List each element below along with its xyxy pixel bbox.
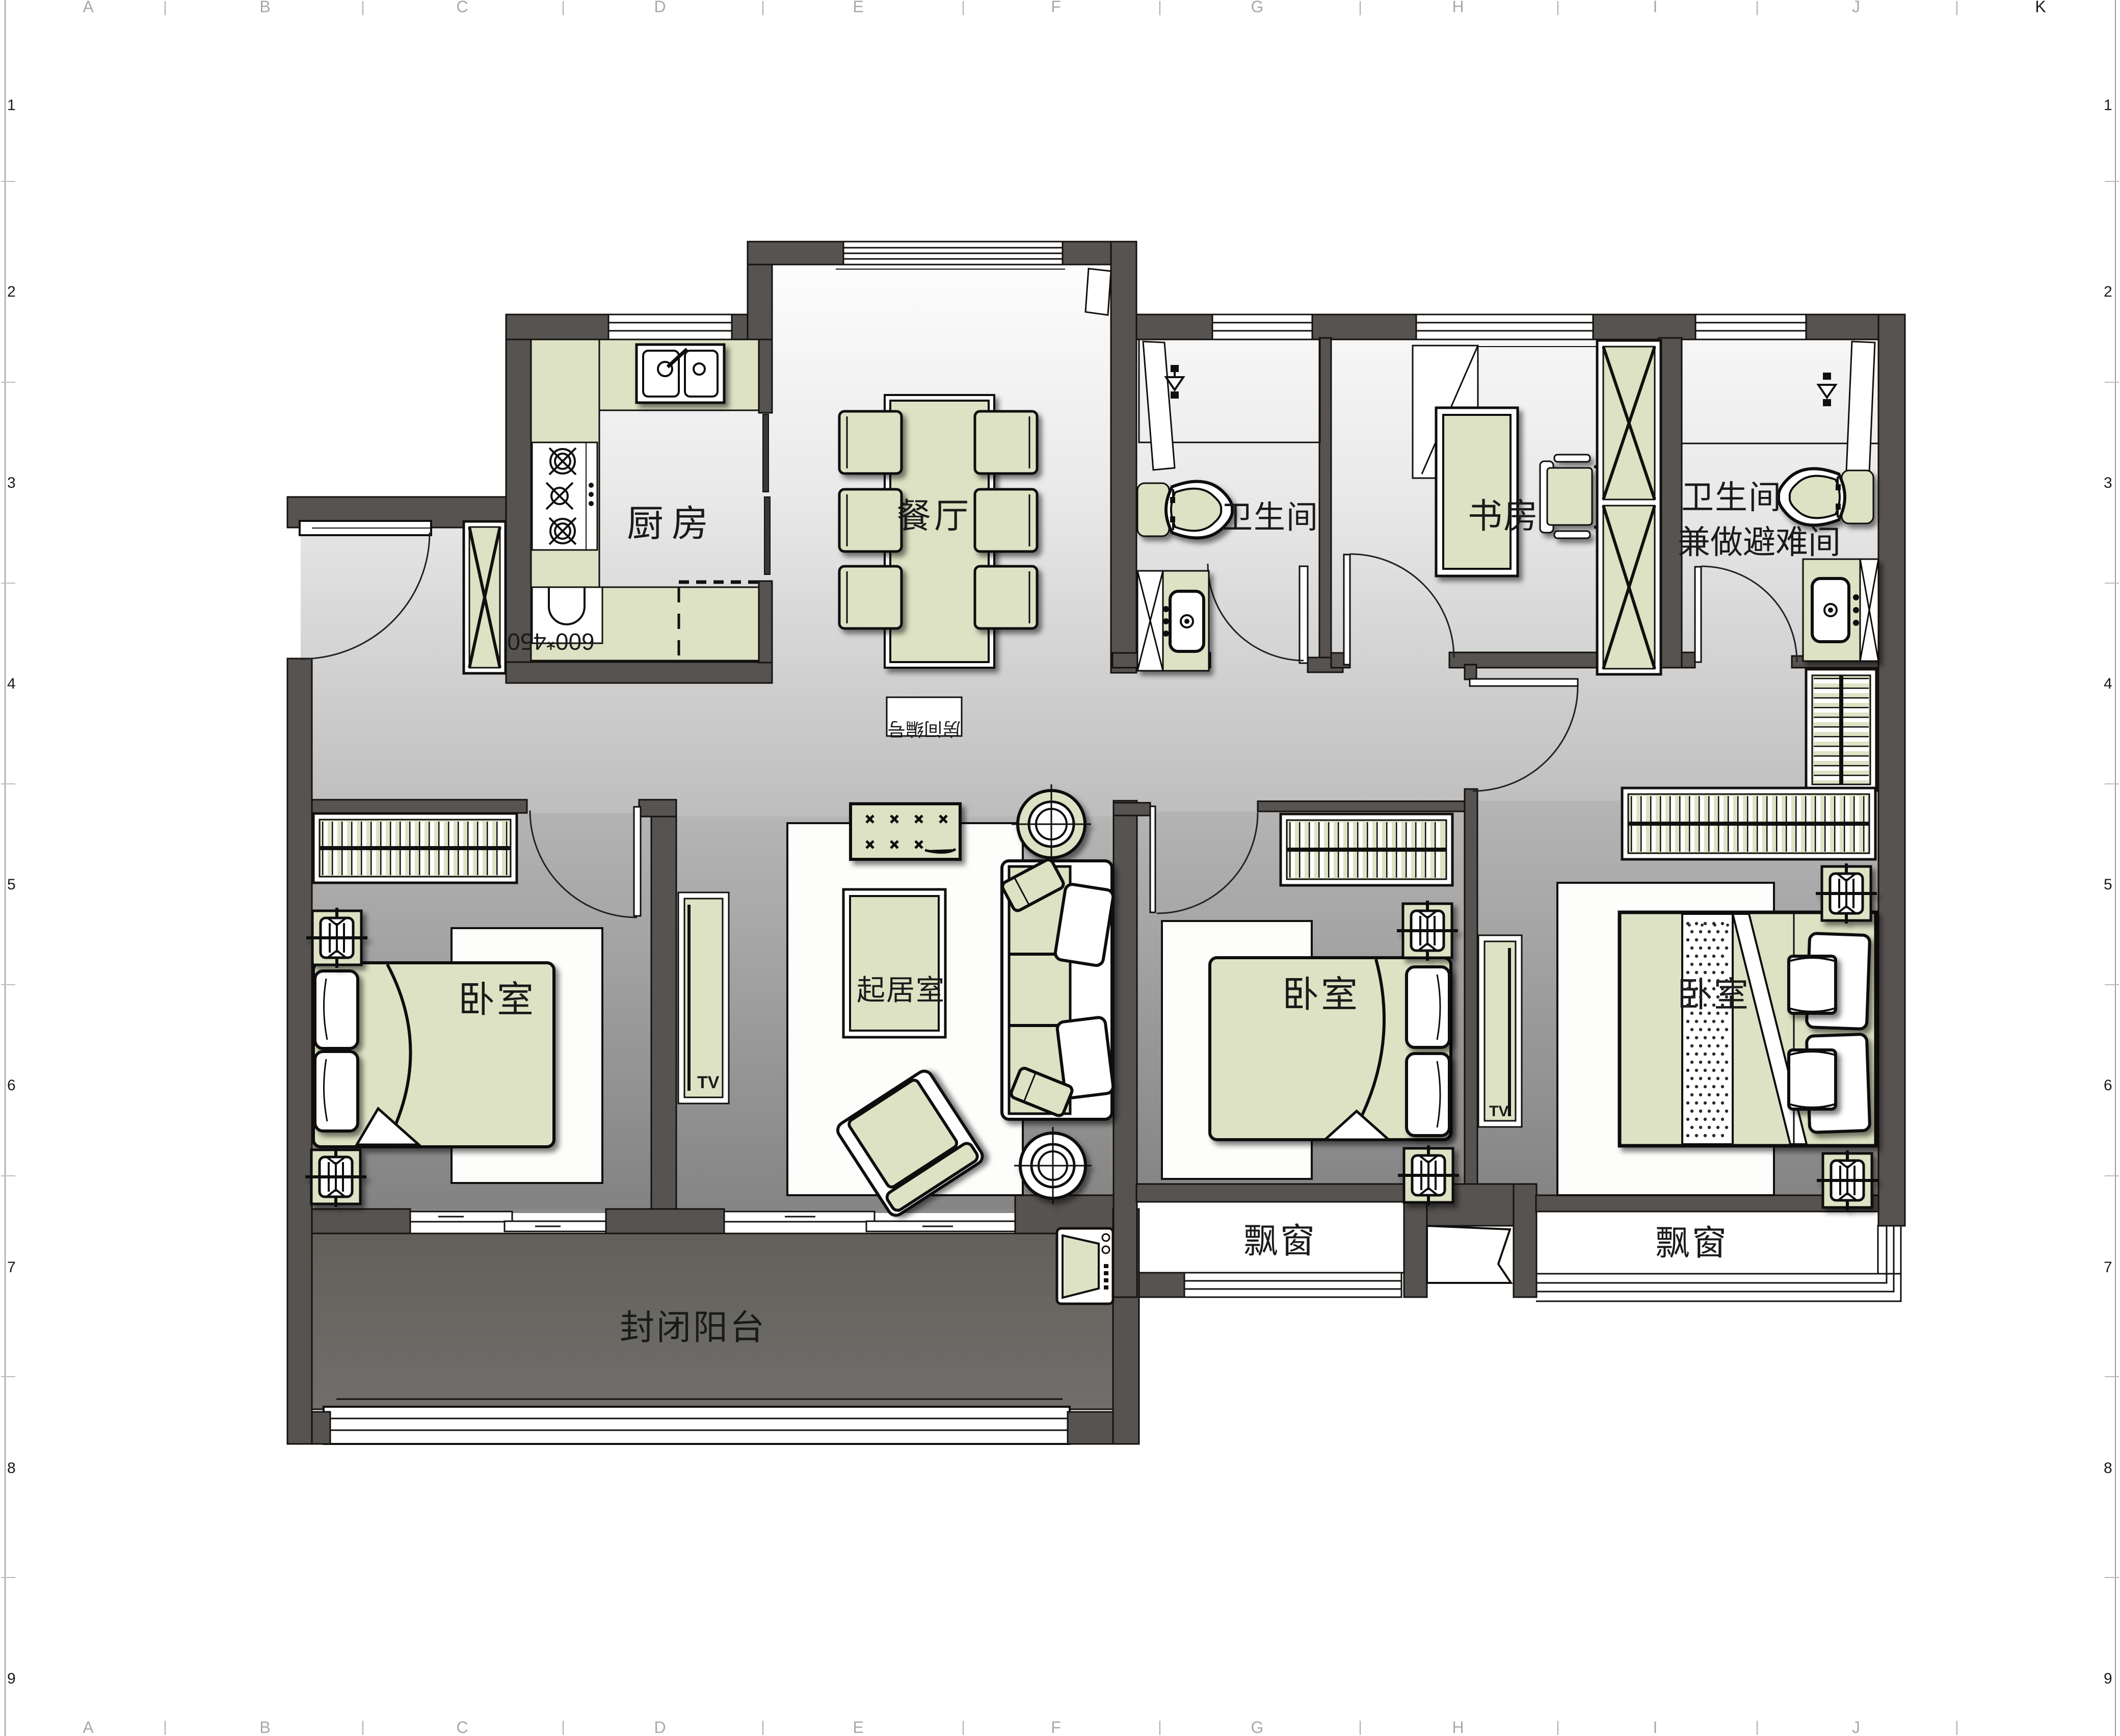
svg-text:4: 4 [2104, 675, 2112, 692]
svg-text:J: J [1852, 0, 1860, 16]
svg-text:F: F [1051, 0, 1061, 16]
svg-text:J: J [1852, 1718, 1860, 1736]
svg-text:2: 2 [2104, 283, 2112, 300]
svg-text:B: B [259, 1718, 270, 1736]
svg-text:A: A [83, 1718, 94, 1736]
svg-text:卧室: 卧室 [1677, 976, 1751, 1014]
svg-text:6: 6 [2104, 1077, 2112, 1094]
svg-text:TV: TV [697, 1073, 720, 1092]
svg-text:封闭阳台: 封闭阳台 [620, 1308, 766, 1347]
svg-text:E: E [853, 0, 863, 16]
svg-text:7: 7 [2104, 1259, 2112, 1276]
svg-text:I: I [1653, 0, 1658, 16]
svg-text:7: 7 [7, 1259, 16, 1276]
svg-text:5: 5 [2104, 876, 2112, 893]
svg-text:厨房: 厨房 [627, 504, 717, 544]
svg-text:K: K [2035, 0, 2046, 16]
svg-text:2: 2 [7, 283, 16, 300]
svg-text:E: E [853, 1718, 863, 1736]
svg-text:卧室: 卧室 [458, 980, 536, 1020]
svg-text:飘窗: 飘窗 [1243, 1222, 1317, 1260]
svg-text:C: C [456, 0, 468, 16]
svg-text:3: 3 [7, 475, 16, 491]
svg-text:600*450: 600*450 [507, 628, 594, 655]
svg-text:3: 3 [2104, 475, 2112, 491]
svg-text:卧室: 卧室 [1282, 975, 1360, 1015]
svg-text:C: C [456, 1718, 468, 1736]
svg-text:D: D [654, 0, 666, 16]
svg-text:4: 4 [7, 675, 16, 692]
svg-text:1: 1 [7, 97, 16, 114]
svg-text:F: F [1051, 1718, 1061, 1736]
svg-text:9: 9 [2104, 1670, 2112, 1687]
svg-text:卫生间: 卫生间 [1221, 500, 1319, 535]
svg-text:1: 1 [2104, 97, 2112, 114]
svg-text:6: 6 [7, 1077, 16, 1094]
svg-text:B: B [259, 0, 270, 16]
svg-text:TV: TV [1489, 1103, 1508, 1120]
svg-text:卫生间: 卫生间 [1681, 479, 1782, 516]
svg-text:兼做避难间: 兼做避难间 [1678, 524, 1841, 561]
svg-text:G: G [1251, 0, 1264, 16]
svg-text:8: 8 [2104, 1460, 2112, 1477]
svg-text:5: 5 [7, 876, 16, 893]
svg-text:餐厅: 餐厅 [896, 497, 972, 536]
svg-text:9: 9 [7, 1670, 16, 1687]
svg-text:H: H [1452, 0, 1464, 16]
svg-text:I: I [1653, 1718, 1658, 1736]
svg-text:D: D [654, 1718, 666, 1736]
svg-text:A: A [83, 0, 94, 16]
svg-text:房间编号: 房间编号 [887, 719, 961, 740]
svg-text:G: G [1251, 1718, 1264, 1736]
svg-text:飘窗: 飘窗 [1655, 1224, 1729, 1262]
svg-text:H: H [1452, 1718, 1464, 1736]
svg-text:书房: 书房 [1468, 497, 1539, 536]
svg-text:8: 8 [7, 1460, 16, 1477]
svg-text:起居室: 起居室 [857, 974, 945, 1006]
